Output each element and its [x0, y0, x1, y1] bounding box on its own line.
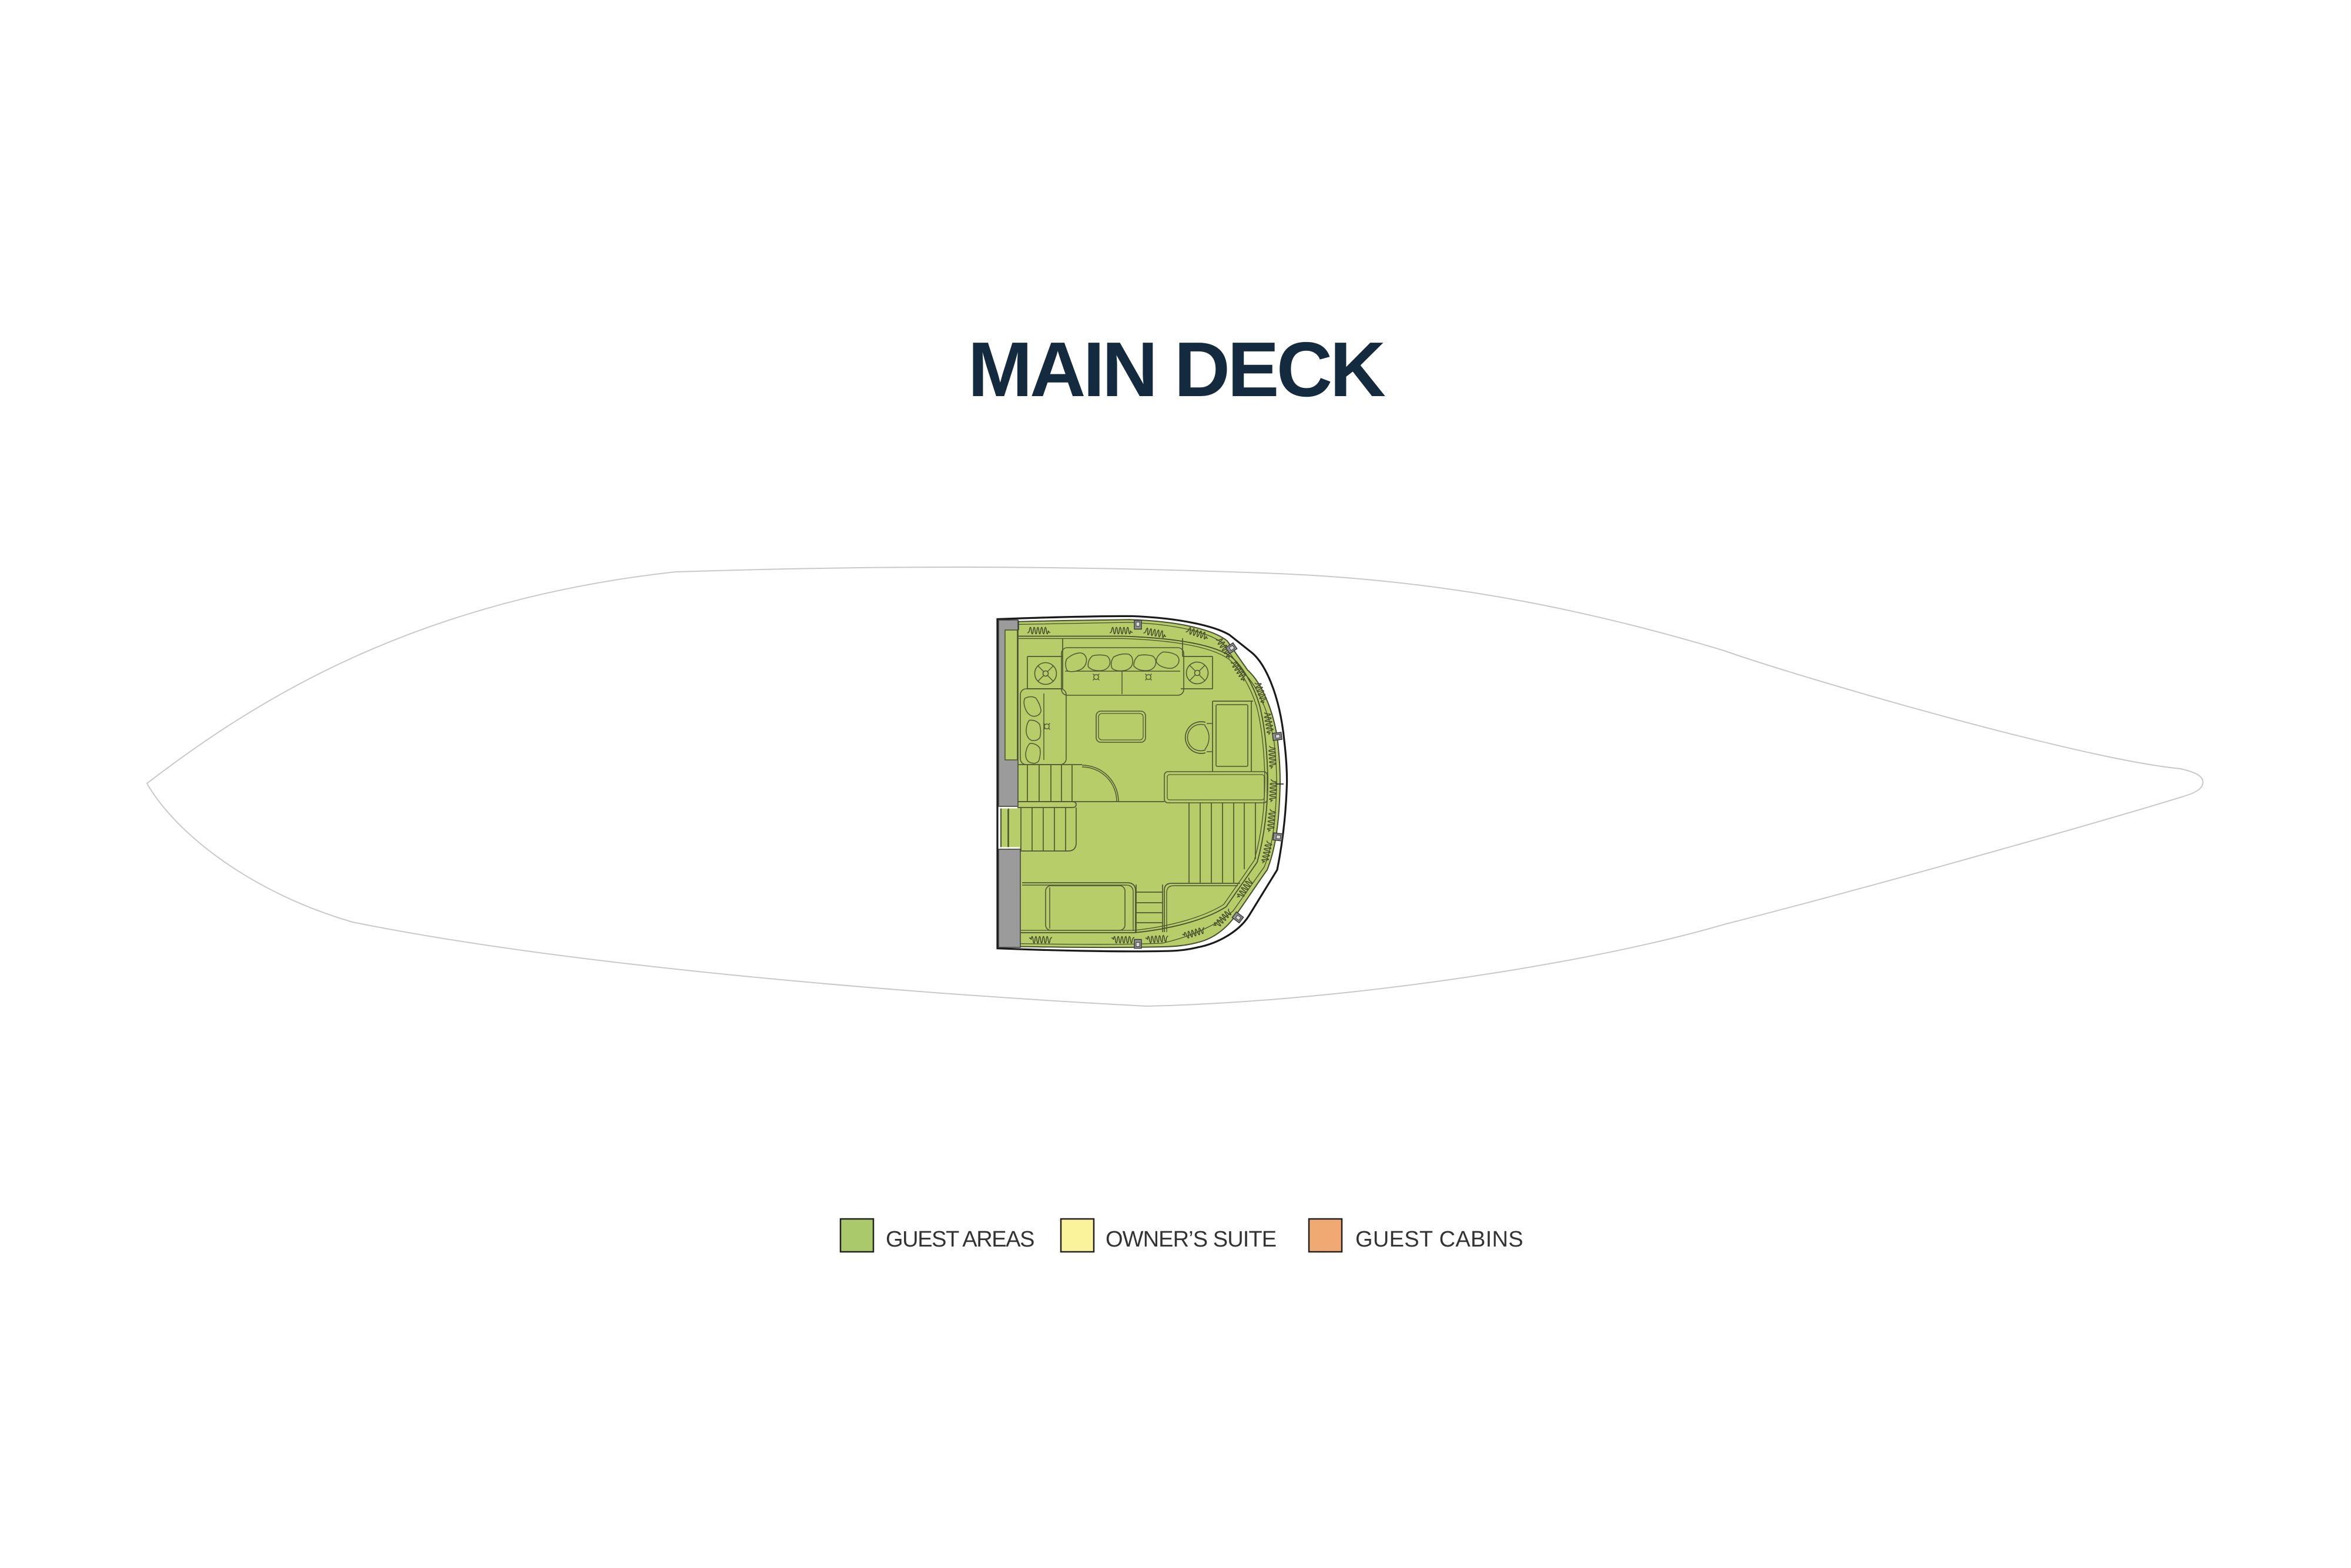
svg-text:MAIN DECK: MAIN DECK: [968, 326, 1386, 413]
svg-text:GUEST CABINS: GUEST CABINS: [1355, 1227, 1523, 1252]
svg-text:OWNER’S SUITE: OWNER’S SUITE: [1106, 1227, 1276, 1252]
svg-text:GUEST AREAS: GUEST AREAS: [886, 1227, 1034, 1252]
